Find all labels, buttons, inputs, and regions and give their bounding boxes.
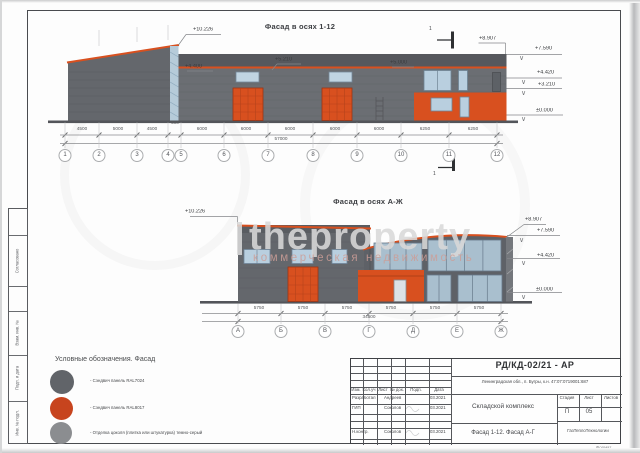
dim-label: 5750	[430, 306, 440, 311]
elevation-mark: +10.226	[193, 27, 213, 33]
scan-edge-right	[629, 0, 640, 453]
elevation-mark: +3.210	[538, 82, 555, 88]
elevation-mark: +4.420	[537, 253, 554, 259]
axis-number: 12	[494, 152, 501, 158]
legend-swatch-plinth	[50, 422, 72, 444]
level-check-icon	[519, 237, 524, 244]
axis-bubble: Д	[407, 325, 420, 338]
elevation-mark: +10.226	[185, 209, 205, 215]
axis-letter: Ж	[498, 328, 504, 334]
dim-label: 4500	[147, 127, 157, 132]
sheet-label: Лист	[584, 396, 593, 400]
axis-letter: Б	[279, 328, 283, 334]
scan-edge-top	[0, 0, 640, 3]
legend-swatch-ral8017	[50, 397, 73, 420]
axis-bubble: 6	[218, 149, 231, 162]
grid-line	[351, 439, 451, 440]
axis-bubble: 11	[443, 149, 456, 162]
axis-number: 8	[311, 152, 314, 158]
tb-header-col: Изм.	[351, 388, 360, 392]
grid-line	[451, 376, 622, 377]
tb-row-role: ГИП	[352, 406, 361, 410]
grid-line	[405, 359, 406, 445]
tb-row-date: 03.2021	[430, 406, 446, 410]
project-address: Ленинградская обл., п. Бугры, к.н. 47:07…	[482, 380, 588, 384]
level-check-icon	[521, 294, 526, 301]
tb-row-role: Н.контр.	[352, 430, 369, 434]
axis-bubble: Б	[275, 325, 288, 338]
axis-bubble: Е	[451, 325, 464, 338]
grid-line	[351, 414, 451, 415]
axis-bubble: 8	[307, 149, 320, 162]
dim-label: 5750	[474, 306, 484, 311]
grid-line	[451, 423, 557, 424]
doc-code: РД/КД-02/21 - АР	[496, 361, 575, 370]
stage-label: Стадия	[560, 396, 575, 400]
grid-line	[377, 359, 378, 445]
facade1-title: Фасад в осях 1-12	[265, 23, 335, 31]
tb-row-name: Соколов	[384, 406, 401, 410]
scan-edge-left	[0, 0, 2, 453]
level-check-icon	[519, 55, 524, 62]
watermark-text: theproperty	[249, 218, 471, 256]
dim-label: 500	[171, 121, 179, 126]
dim-label: 6000	[330, 127, 340, 132]
elevation-mark: +5.000	[390, 60, 407, 66]
legend-swatch-ral7024	[50, 370, 74, 394]
legend-label: - Отделка цоколя (плитка или штукатурка)…	[90, 431, 202, 435]
dim-label: 6000	[197, 127, 207, 132]
grid-line	[351, 428, 451, 429]
axis-number: 1	[63, 152, 66, 158]
elevation-mark: +8.907	[479, 36, 496, 42]
axis-number: 3	[135, 152, 138, 158]
axis-number: 6	[222, 152, 225, 158]
dim-label: 4500	[77, 127, 87, 132]
axis-bubble: 4	[162, 149, 175, 162]
axis-bubble: 7	[262, 149, 275, 162]
legend-title: Условные обозначения. Фасад	[55, 356, 155, 363]
grid-line	[351, 373, 451, 374]
axis-number: 10	[398, 152, 405, 158]
axis-bubble: 5	[175, 149, 188, 162]
dim-label: 5000	[113, 127, 123, 132]
axis-bubble: 12	[491, 149, 504, 162]
level-check-icon	[521, 116, 526, 123]
grid-line	[557, 394, 558, 445]
axis-bubble: 2	[93, 149, 106, 162]
axis-number: 9	[355, 152, 358, 158]
axis-bubble: В	[319, 325, 332, 338]
dim-label: 5750	[342, 306, 352, 311]
grid-line	[351, 380, 451, 381]
axis-letter: Г	[367, 328, 370, 334]
dim-label: 5750	[386, 306, 396, 311]
axis-bubble: Г	[363, 325, 376, 338]
tb-header-col: № док.	[390, 388, 404, 392]
legend-label: - Сэндвич панель RAL7024	[90, 379, 144, 383]
axis-number: 11	[446, 152, 452, 158]
elevation-mark: ±0.000	[536, 287, 553, 293]
sheets-label: Листов	[604, 396, 618, 400]
section-label: 1	[429, 27, 432, 32]
axis-bubble: Ж	[495, 325, 508, 338]
elevation-mark: +7.590	[535, 46, 552, 52]
level-check-icon	[521, 90, 526, 97]
tb-row-name: Соколов	[384, 430, 401, 434]
dim-label: 6250	[468, 127, 478, 132]
tb-header-col: Кол.уч	[363, 388, 376, 392]
grid-line	[557, 407, 622, 408]
axis-number: 4	[166, 152, 169, 158]
legend-label: - Сэндвич панель RAL8017	[90, 406, 144, 410]
axis-letter: Д	[411, 328, 415, 334]
watermark-subtext: коммерческая недвижимость	[253, 253, 474, 265]
elevation-mark: +4.420	[537, 70, 554, 76]
dim-total: 34500	[362, 315, 375, 320]
axis-letter: Е	[455, 328, 459, 334]
grid-line	[451, 359, 452, 445]
axis-letter: А	[236, 328, 240, 334]
elevation-mark: +7.590	[537, 228, 554, 234]
elevation-mark: +8.907	[525, 217, 542, 223]
level-check-icon	[521, 260, 526, 267]
tb-header-col: Дата	[434, 388, 444, 392]
axis-bubble: А	[232, 325, 245, 338]
level-check-icon	[521, 79, 526, 86]
grid-line	[351, 366, 451, 367]
grid-line	[351, 404, 451, 405]
dim-label: 5750	[298, 306, 308, 311]
tb-row-name: Андреев	[384, 396, 401, 400]
company-name: ГазТеплоТехнологии	[567, 429, 608, 433]
tb-header-col: Лист	[378, 388, 387, 392]
elevation-mark: +5.210	[275, 57, 292, 63]
axis-number: 5	[179, 152, 182, 158]
dim-label: 6000	[241, 127, 251, 132]
elevation-mark: ±0.000	[536, 108, 553, 114]
project-object: Складской комплекс	[472, 404, 534, 411]
stage-value: П	[565, 409, 569, 415]
tb-row-date: 03.2021	[430, 396, 446, 400]
axis-number: 2	[97, 152, 100, 158]
tb-row-role: Разработал	[352, 396, 376, 400]
watermark-logo-bar	[237, 222, 242, 255]
drawing-sheet: Согласовано Взам. инв. № Подп. и дата Ин…	[0, 0, 640, 453]
grid-line	[351, 394, 622, 395]
axis-bubble: 9	[351, 149, 364, 162]
elevation-mark: +4.400	[185, 64, 202, 70]
axis-bubble: 3	[131, 149, 144, 162]
axis-number: 7	[266, 152, 269, 158]
axis-bubble: 1	[59, 149, 72, 162]
dim-label: 6250	[420, 127, 430, 132]
section-label: 1	[433, 172, 436, 177]
dim-label: 5750	[254, 306, 264, 311]
drawing-name: Фасад 1-12. Фасад А-Г	[471, 430, 534, 436]
sheet-number: 05	[586, 409, 593, 415]
grid-line	[351, 421, 451, 422]
tb-header-col: Подп.	[410, 388, 421, 392]
dim-label: 6000	[285, 127, 295, 132]
axis-letter: В	[323, 328, 327, 334]
grid-line	[557, 421, 622, 422]
scan-edge-bottom	[0, 448, 640, 453]
dim-total: 57000	[274, 137, 287, 142]
facade2-title: Фасад в осях А-Ж	[333, 198, 403, 206]
tb-row-date: 03.2021	[430, 430, 446, 434]
axis-bubble: 10	[395, 149, 408, 162]
dim-label: 6000	[374, 127, 384, 132]
